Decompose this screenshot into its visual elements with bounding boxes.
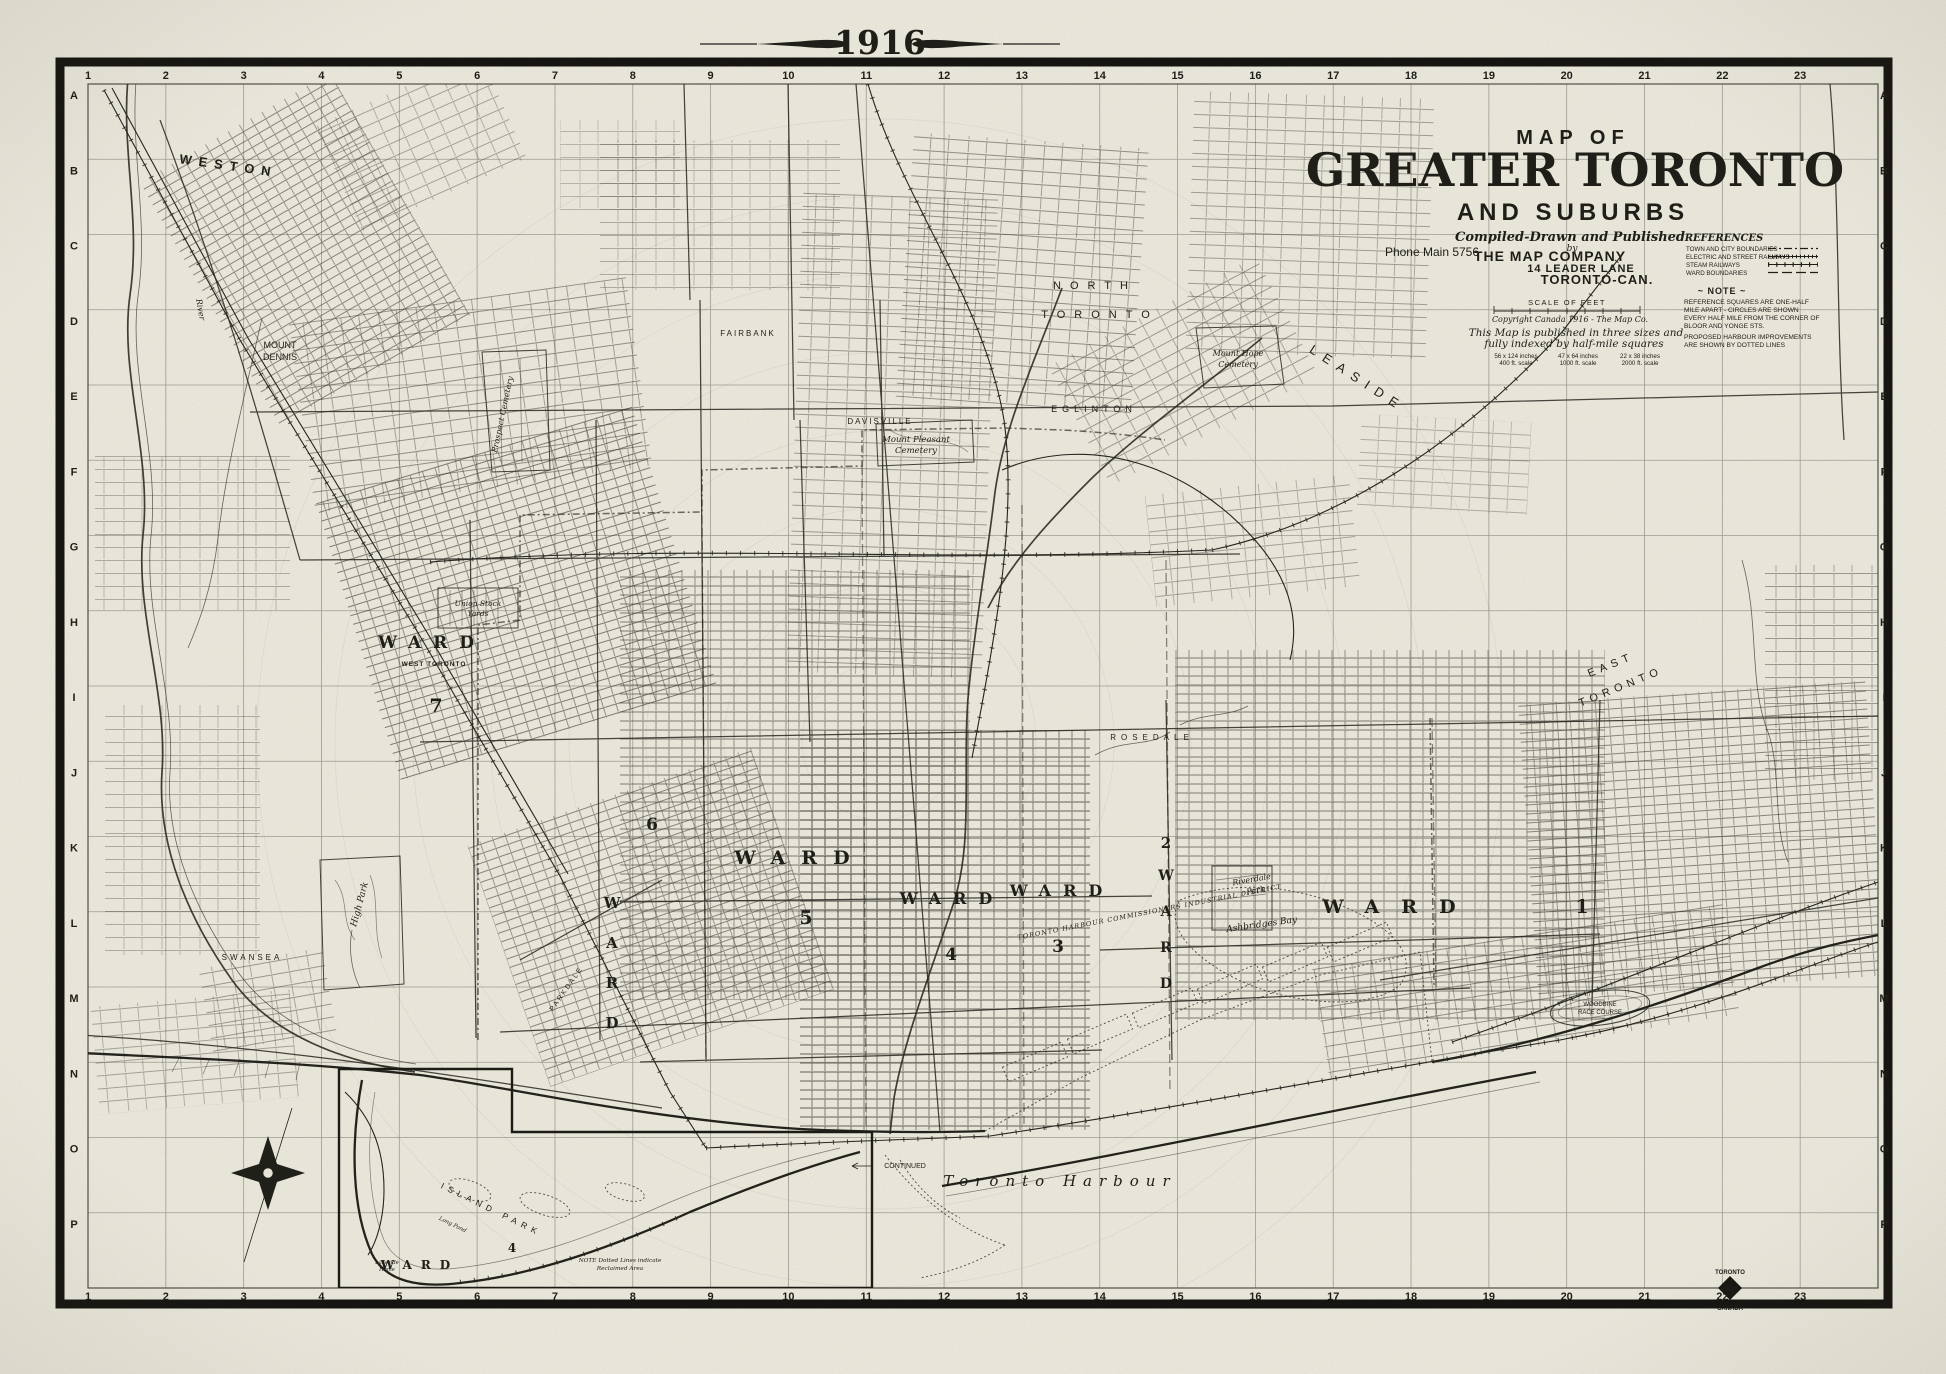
vignette bbox=[0, 0, 1946, 1374]
map-canvas: 1916 bbox=[0, 0, 1946, 1374]
toronto-1916-map: 1916 bbox=[0, 0, 1946, 1374]
